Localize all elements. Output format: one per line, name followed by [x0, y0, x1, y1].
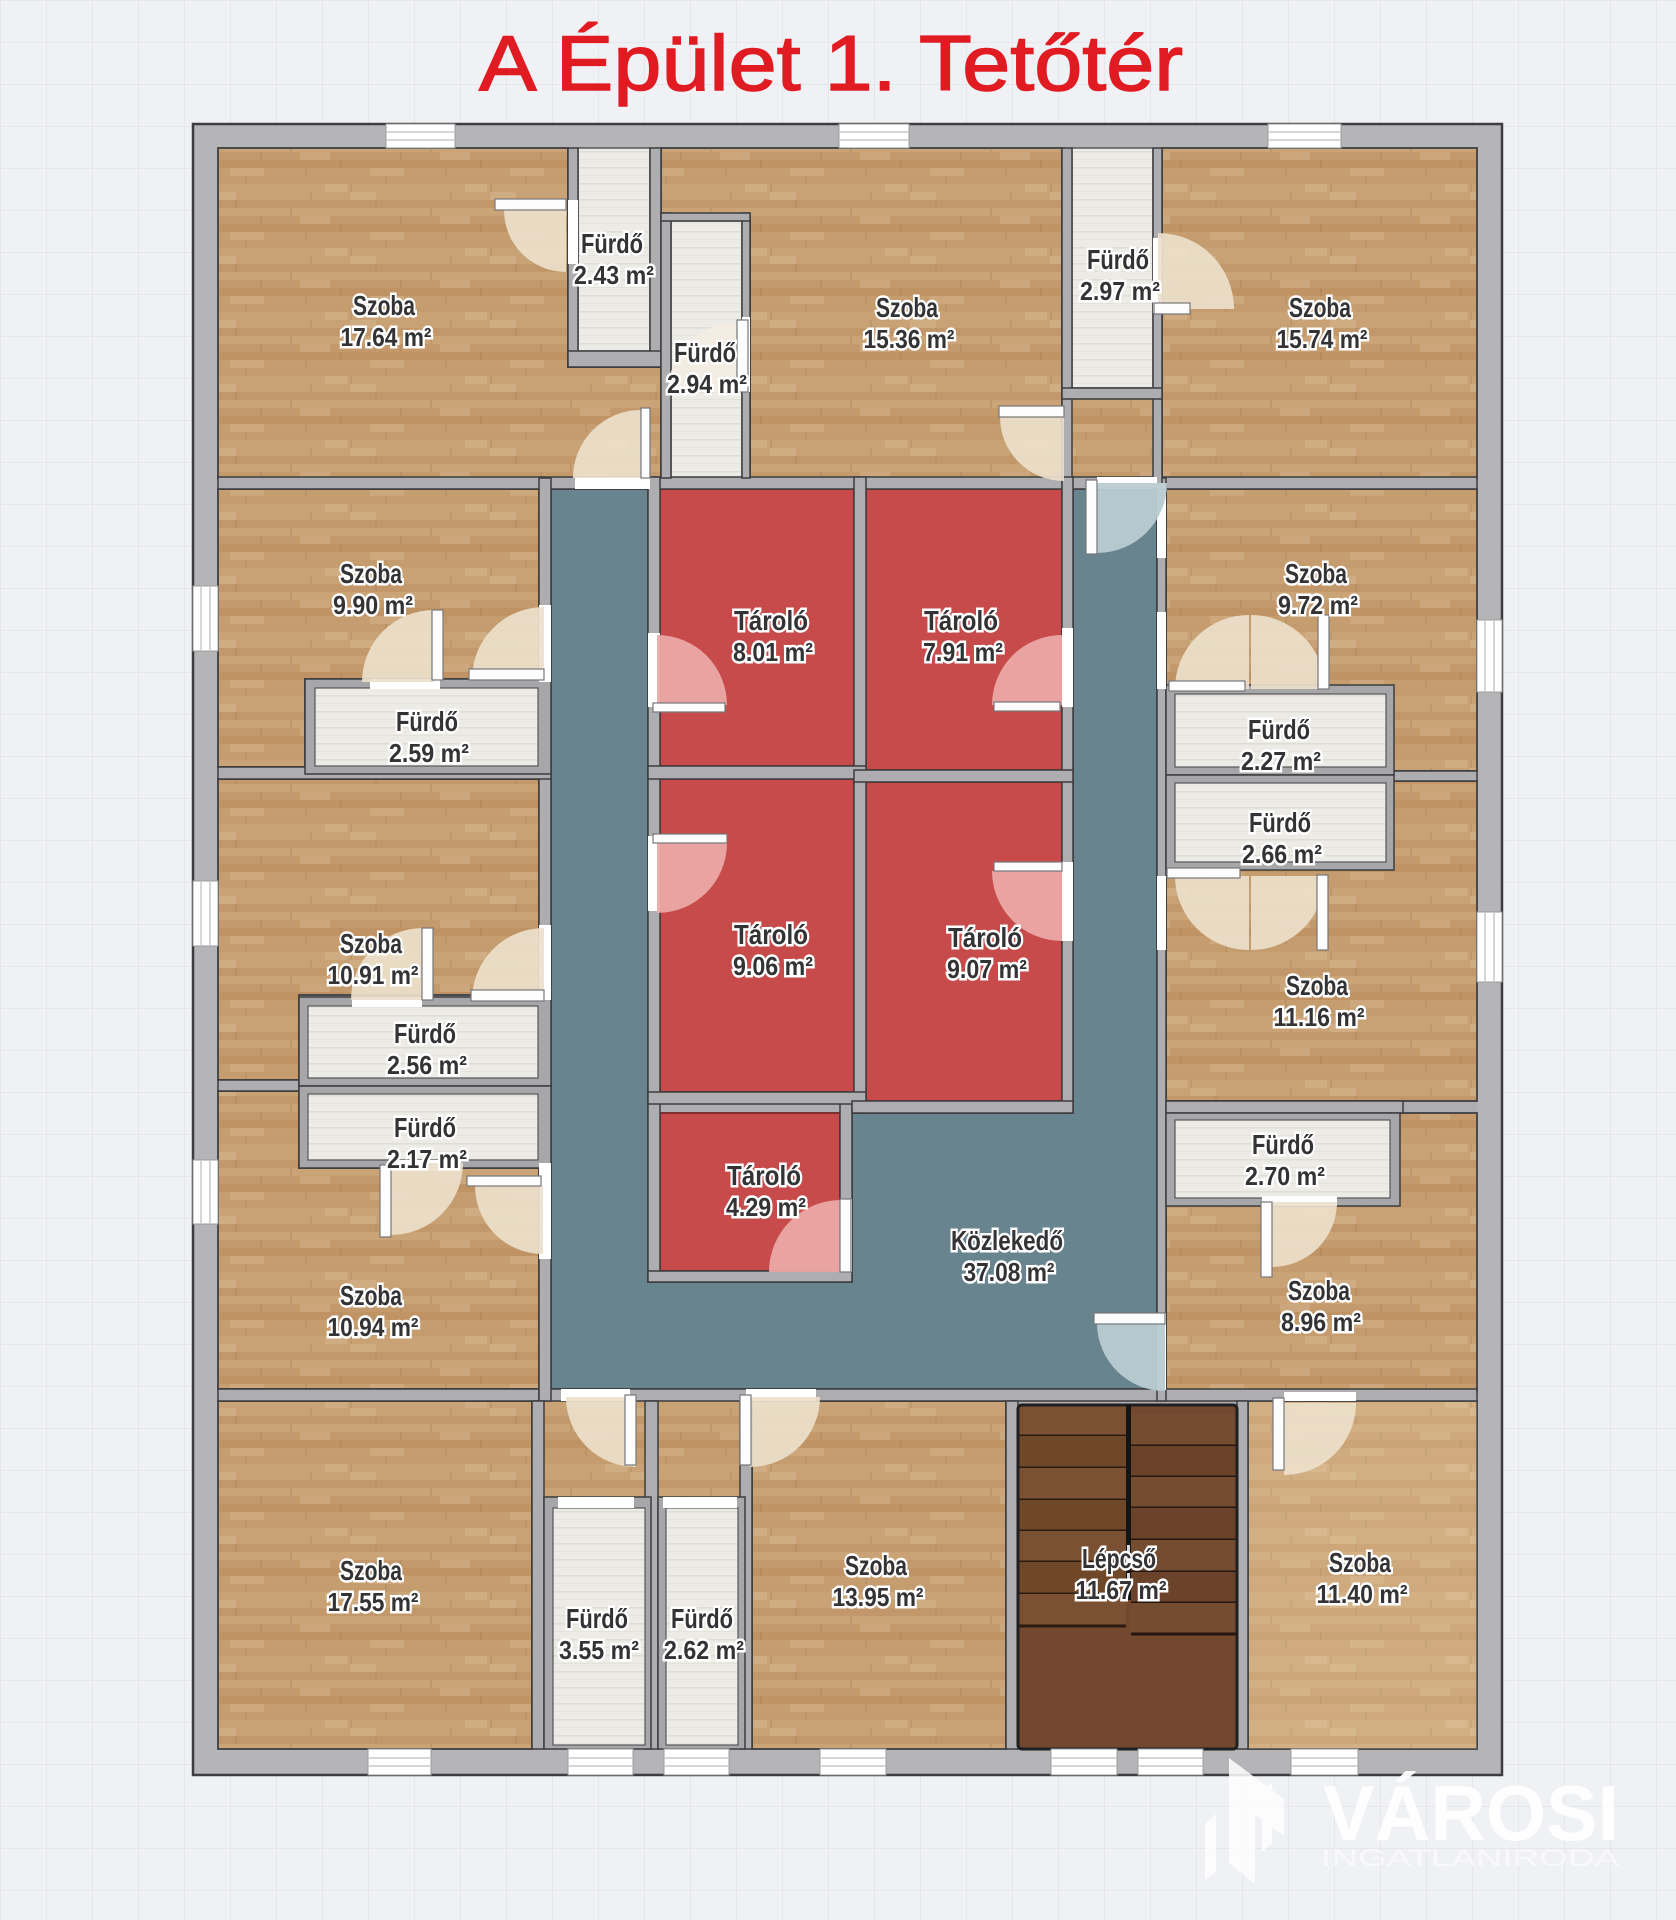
svg-text:11.40 m²: 11.40 m²: [1317, 1579, 1408, 1609]
svg-text:11.67 m²: 11.67 m²: [1076, 1575, 1167, 1605]
svg-text:9.72 m²: 9.72 m²: [1278, 590, 1358, 620]
svg-text:Tároló: Tároló: [948, 922, 1022, 953]
svg-text:15.36 m²: 15.36 m²: [864, 324, 955, 354]
svg-text:2.66 m²: 2.66 m²: [1242, 839, 1322, 869]
svg-text:2.62 m²: 2.62 m²: [664, 1635, 744, 1665]
svg-text:Tároló: Tároló: [734, 605, 808, 636]
svg-text:2.97 m²: 2.97 m²: [1080, 276, 1160, 306]
svg-text:13.95 m²: 13.95 m²: [833, 1582, 924, 1612]
svg-text:8.01 m²: 8.01 m²: [733, 637, 813, 667]
svg-text:9.06 m²: 9.06 m²: [733, 951, 813, 981]
svg-text:2.43 m²: 2.43 m²: [574, 260, 654, 290]
svg-text:9.07 m²: 9.07 m²: [947, 954, 1027, 984]
svg-text:Fürdő: Fürdő: [566, 1603, 628, 1634]
svg-text:15.74 m²: 15.74 m²: [1277, 324, 1368, 354]
svg-text:Szoba: Szoba: [340, 928, 402, 959]
svg-text:INGATLANIRODA: INGATLANIRODA: [1321, 1845, 1619, 1872]
svg-text:11.16 m²: 11.16 m²: [1274, 1002, 1365, 1032]
svg-text:Szoba: Szoba: [1286, 970, 1348, 1001]
svg-text:Fürdő: Fürdő: [394, 1018, 456, 1049]
svg-text:Fürdő: Fürdő: [581, 228, 643, 259]
svg-text:8.96 m²: 8.96 m²: [1281, 1307, 1361, 1337]
svg-text:Fürdő: Fürdő: [396, 706, 458, 737]
svg-text:17.64 m²: 17.64 m²: [341, 322, 432, 352]
svg-text:17.55 m²: 17.55 m²: [328, 1587, 419, 1617]
svg-text:Fürdő: Fürdő: [1252, 1129, 1314, 1160]
svg-text:Fürdő: Fürdő: [674, 337, 736, 368]
svg-text:7.91 m²: 7.91 m²: [923, 637, 1003, 667]
svg-text:Közlekedő: Közlekedő: [951, 1225, 1063, 1256]
svg-text:Szoba: Szoba: [876, 292, 938, 323]
svg-text:Tároló: Tároló: [924, 605, 998, 636]
svg-text:Tároló: Tároló: [727, 1160, 801, 1191]
svg-text:2.27 m²: 2.27 m²: [1241, 746, 1321, 776]
svg-text:Fürdő: Fürdő: [671, 1603, 733, 1634]
svg-text:Lépcső: Lépcső: [1082, 1543, 1156, 1574]
svg-text:Szoba: Szoba: [1329, 1547, 1391, 1578]
svg-text:Szoba: Szoba: [1288, 1275, 1350, 1306]
svg-text:Fürdő: Fürdő: [1248, 714, 1310, 745]
svg-text:Fürdő: Fürdő: [1087, 244, 1149, 275]
svg-text:Fürdő: Fürdő: [1249, 807, 1311, 838]
svg-text:10.91 m²: 10.91 m²: [328, 960, 419, 990]
svg-text:Tároló: Tároló: [734, 919, 808, 950]
svg-text:2.70 m²: 2.70 m²: [1245, 1161, 1325, 1191]
svg-text:2.94 m²: 2.94 m²: [667, 369, 747, 399]
svg-text:Szoba: Szoba: [353, 290, 415, 321]
svg-text:9.90 m²: 9.90 m²: [333, 590, 413, 620]
svg-text:2.17 m²: 2.17 m²: [387, 1144, 467, 1174]
svg-text:Szoba: Szoba: [1289, 292, 1351, 323]
svg-text:3.55 m²: 3.55 m²: [559, 1635, 639, 1665]
svg-text:Szoba: Szoba: [340, 558, 402, 589]
svg-text:2.59 m²: 2.59 m²: [389, 738, 469, 768]
svg-text:Szoba: Szoba: [340, 1280, 402, 1311]
svg-text:4.29 m²: 4.29 m²: [726, 1192, 806, 1222]
svg-text:Fürdő: Fürdő: [394, 1112, 456, 1143]
svg-text:A Épület 1. Tetőtér: A Épület 1. Tetőtér: [479, 19, 1183, 107]
svg-text:VÁROSI: VÁROSI: [1323, 1769, 1619, 1857]
svg-text:10.94 m²: 10.94 m²: [328, 1312, 419, 1342]
svg-text:Szoba: Szoba: [1285, 558, 1347, 589]
svg-text:37.08 m²: 37.08 m²: [964, 1257, 1055, 1287]
svg-text:Szoba: Szoba: [845, 1550, 907, 1581]
svg-text:2.56 m²: 2.56 m²: [387, 1050, 467, 1080]
svg-text:Szoba: Szoba: [340, 1555, 402, 1586]
